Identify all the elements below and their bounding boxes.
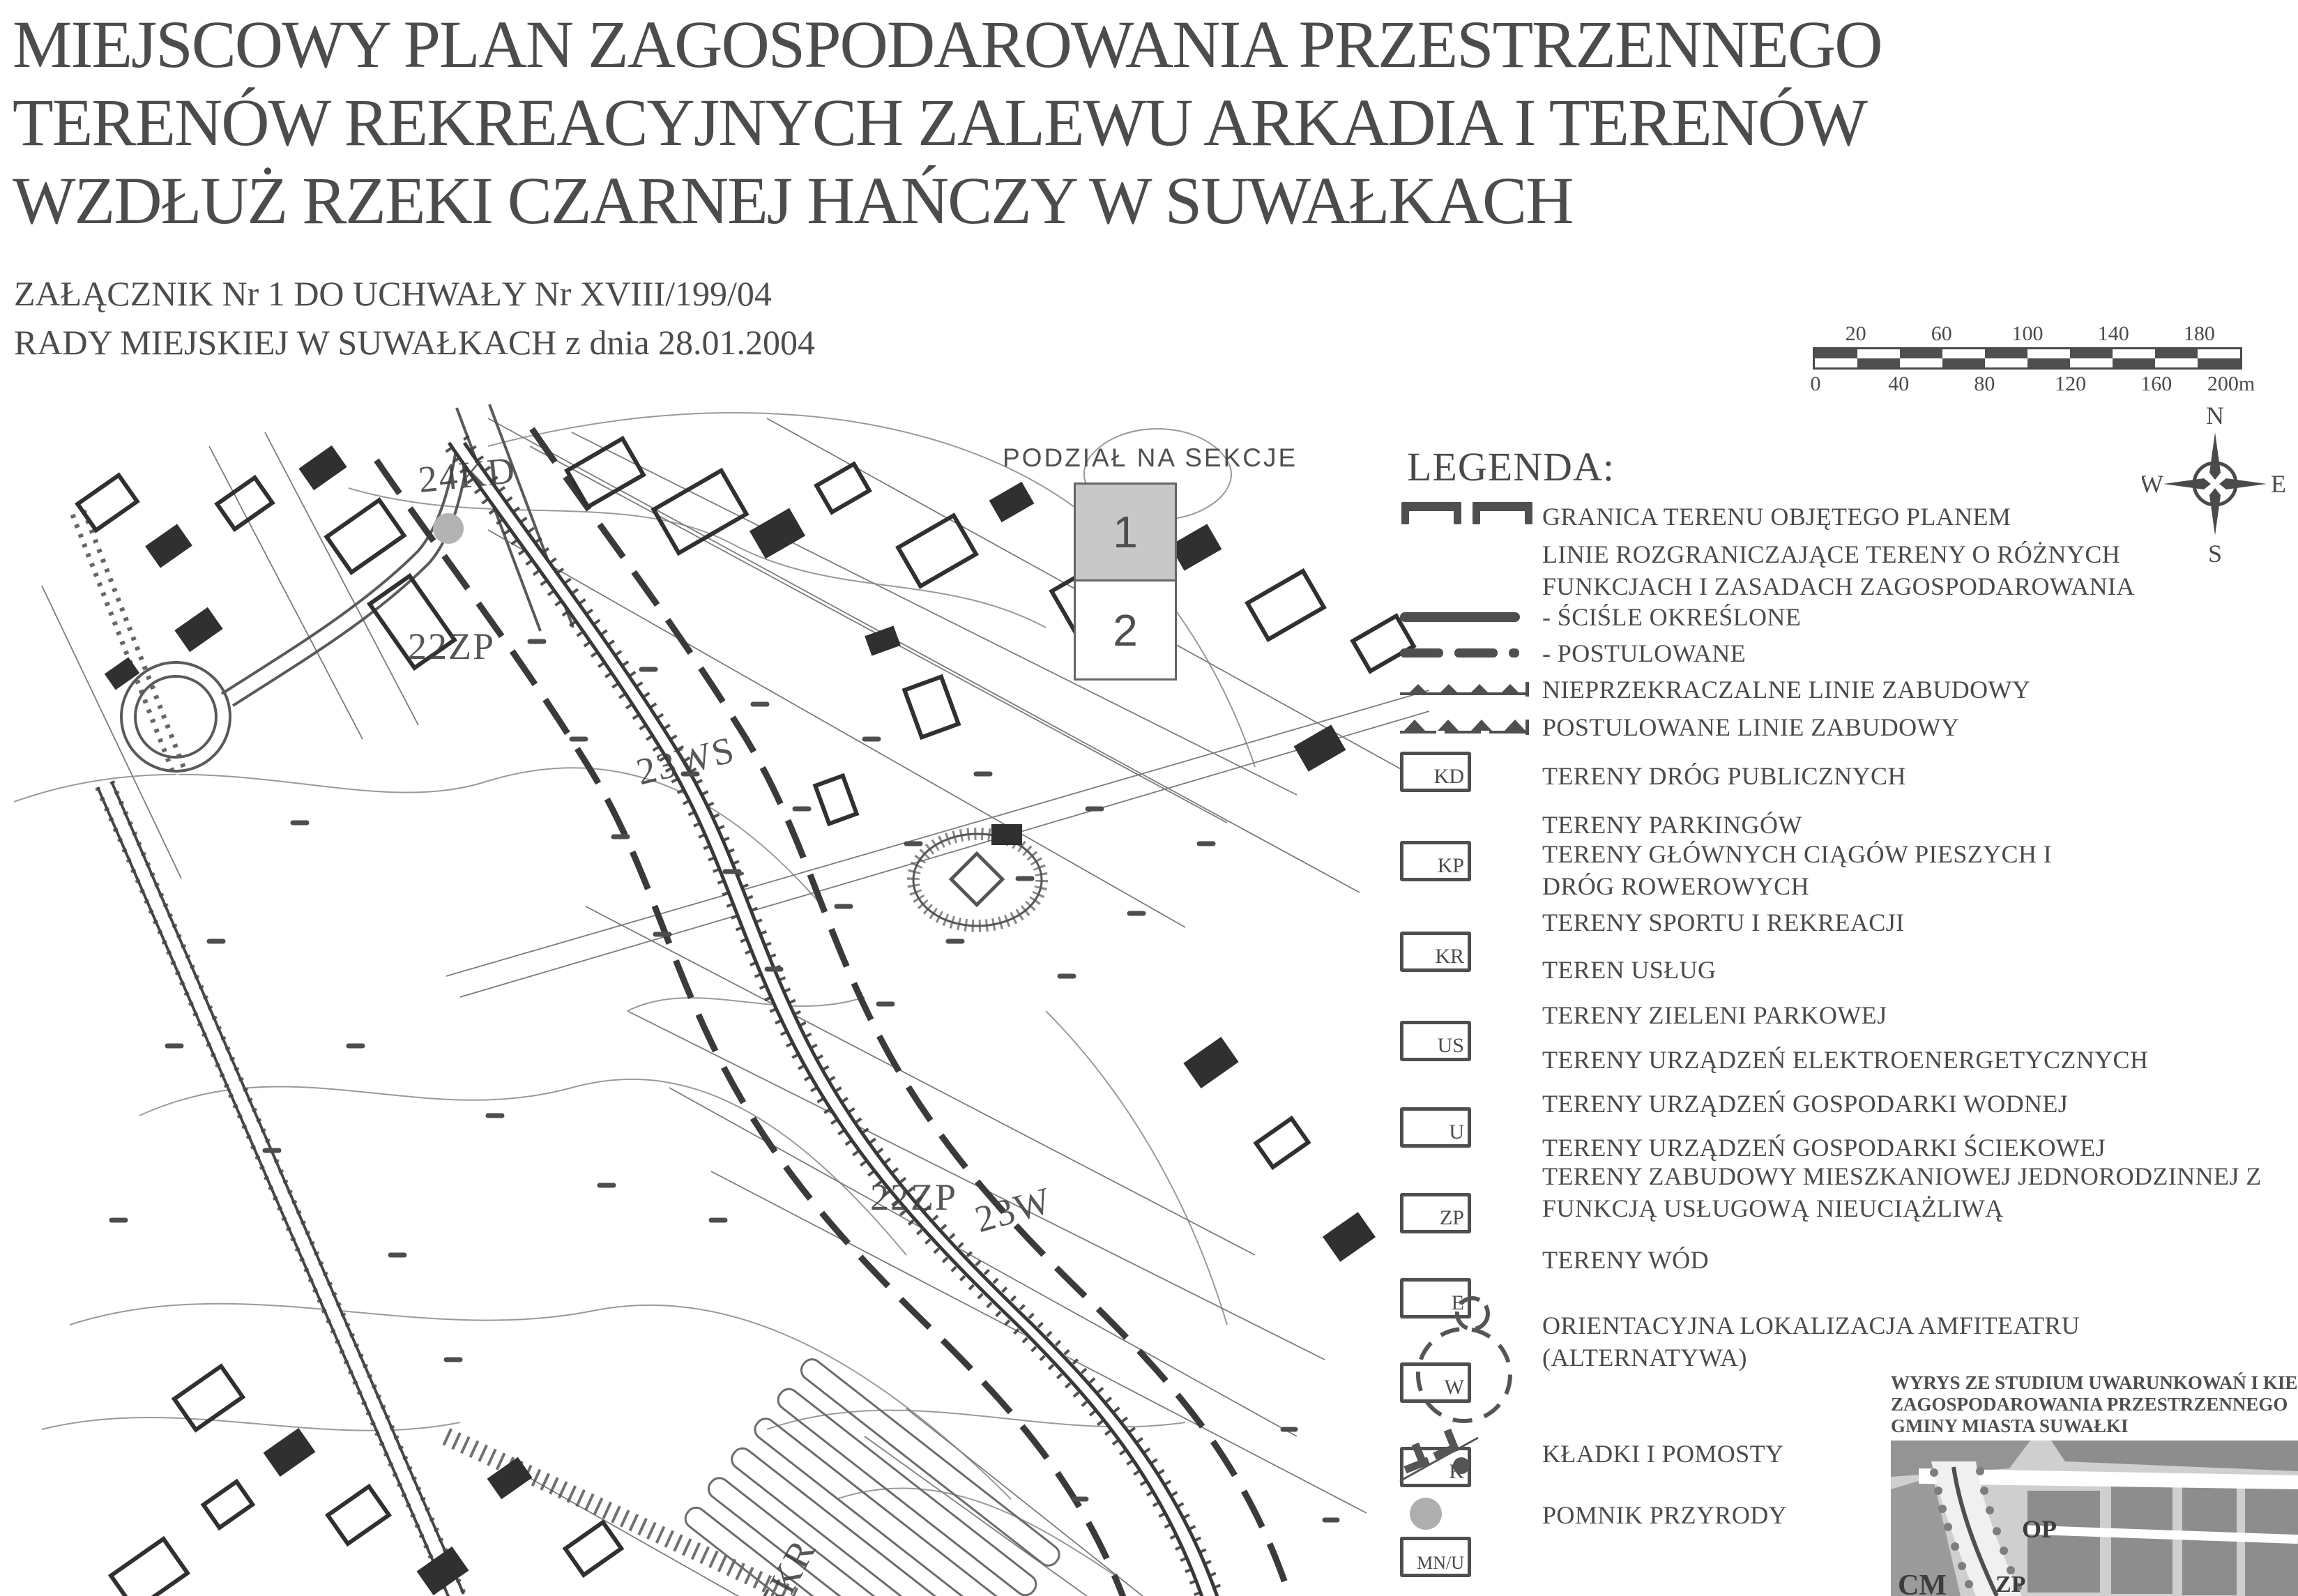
page-title-line-3: WZDŁUŻ RZEKI CZARNEJ HAŃCZY W SUWAŁKACH (13, 163, 1572, 238)
survey-ticks (112, 641, 1337, 1520)
legend-heading: LEGENDA: (1407, 443, 1615, 490)
scale-tick-label: 100 (2012, 322, 2044, 346)
inset-title-line-1: WYRYS ZE STUDIUM UWARUNKOWAŃ I KIERUNKÓW (1891, 1372, 2253, 1394)
sections-box: 1 2 (1074, 482, 1177, 681)
scale-tick-label: 180 (2184, 322, 2215, 346)
legend-symbol-building-line-2 (1400, 711, 1536, 739)
legend-code: U (1449, 1120, 1464, 1144)
scale-tick-label: 20 (1846, 322, 1866, 346)
legend-label-ws: TERENY WÓD (1542, 1244, 2225, 1276)
legend-code: US (1438, 1034, 1464, 1058)
legend-symbol-box-kp: KP (1400, 841, 1471, 881)
parking-strips (682, 1355, 1063, 1596)
legend-symbol-building-line (1400, 675, 1536, 700)
legend-label-kd: TERENY DRÓG PUBLICZNYCH (1542, 760, 2225, 792)
legend-label-u: TEREN USŁUG (1542, 954, 2225, 986)
compass-n: N (2206, 406, 2224, 430)
legend-symbol-box-us: US (1400, 1021, 1471, 1061)
scale-bar-bottom-labels: 0 40 80 120 160 200m (1813, 370, 2242, 397)
legend-label-mnu: TERENY ZABUDOWY MIESZKANIOWEJ JEDNORODZI… (1542, 1160, 2281, 1224)
legend-symbol-monument-dot (1410, 1498, 1442, 1530)
plan-sheet: MIEJSCOWY PLAN ZAGOSPODAROWANIA PRZESTRZ… (0, 0, 2298, 1596)
building-outlines (77, 439, 1413, 1596)
inset-title-line-3: GMINY MIASTA SUWAŁKI (1891, 1415, 2253, 1437)
scale-tick-label: 80 (1974, 372, 1995, 396)
legend-code: KP (1438, 854, 1464, 878)
scale-tick-label: 160 (2140, 372, 2172, 396)
page-title-line-1: MIEJSCOWY PLAN ZAGOSPODAROWANIA PRZESTRZ… (13, 7, 1882, 82)
legend-code: ZP (1440, 1206, 1464, 1230)
legend-label-linie-rozgraniczajace: LINIE ROZGRANICZAJĄCE TERENY O RÓŻNYCH F… (1542, 538, 2170, 602)
scale-tick-label: 140 (2098, 322, 2129, 346)
legend-label-postulowane-zabudowy: POSTULOWANE LINIE ZABUDOWY (1542, 711, 2225, 743)
legend-symbol-box-kd: KD (1400, 752, 1471, 792)
legend-symbol-dashed-line (1400, 648, 1519, 658)
legend-label-kp: TERENY PARKINGÓW (1542, 809, 2225, 841)
legend-label-nieprzekraczalne: NIEPRZEKRACZALNE LINIE ZABUDOWY (1542, 674, 2225, 706)
legend-code: MN/U (1417, 1553, 1464, 1574)
legend-symbol-box-u: U (1400, 1107, 1471, 1148)
legend-symbol-box-zp: ZP (1400, 1193, 1471, 1233)
inset-title-line-2: ZAGOSPODAROWANIA PRZESTRZENNEGO (1891, 1394, 2253, 1415)
inset-map (1891, 1441, 2298, 1596)
sections-title: PODZIAŁ NA SEKCJE (1003, 443, 1298, 473)
legend-symbol-box-mnu: MN/U (1400, 1537, 1471, 1577)
scale-bar-top-labels: 20 60 100 140 180 (1813, 322, 2242, 347)
scale-bar-checker (1813, 347, 2242, 370)
legend-symbol-boundary (1400, 496, 1536, 530)
legend-label-us: TERENY SPORTU I REKREACJI (1542, 906, 2225, 938)
road-band-south (446, 1436, 795, 1596)
scale-tick-label: 200m (2207, 372, 2255, 396)
scale-tick-label: 0 (1811, 372, 1821, 396)
plan-map-drawing (0, 401, 1436, 1596)
scale-tick-label: 60 (1931, 322, 1952, 346)
scale-bar: 20 60 100 140 180 0 40 80 120 160 200m (1813, 322, 2242, 397)
legend-label-w: TERENY URZĄDZEŃ GOSPODARKI WODNEJ (1542, 1088, 2267, 1120)
page-title-line-2: TERENÓW REKREACYJNYCH ZALEWU ARKADIA I T… (13, 85, 1866, 160)
legend-label-postulowane: - POSTULOWANE (1542, 637, 2170, 669)
monument-dot-on-map (433, 513, 464, 544)
legend-code: KR (1435, 945, 1464, 968)
compass-e: E (2271, 470, 2286, 498)
legend-label-zp: TERENY ZIELENI PARKOWEJ (1542, 999, 2225, 1031)
section-cell-2: 2 (1076, 582, 1175, 678)
section-cell-1: 1 (1076, 485, 1175, 582)
parcel-lines (42, 418, 1429, 1596)
legend-label-k: TERENY URZĄDZEŃ GOSPODARKI ŚCIEKOWEJ (1542, 1132, 2267, 1164)
compass-s: S (2208, 540, 2222, 566)
legend-symbol-box-kr: KR (1400, 932, 1471, 972)
legend-label-granica: GRANICA TERENU OBJĘTEGO PLANEM (1542, 501, 2225, 533)
scale-tick-label: 40 (1888, 372, 1909, 396)
legend-label-kr: TERENY GŁÓWNYCH CIĄGÓW PIESZYCH I DRÓG R… (1542, 838, 2072, 902)
legend-code: KD (1434, 765, 1464, 789)
legend-label-amphitheater: ORIENTACYJNA LOKALIZACJA AMFITEATRU (ALT… (1542, 1309, 2114, 1374)
legend-symbol-bridge (1394, 1422, 1485, 1492)
legend-label-scisle-okreslone: - ŚCIŚLE OKREŚLONE (1542, 601, 2170, 633)
compass-w: W (2142, 470, 2163, 498)
legend-symbol-amphitheater (1403, 1291, 1528, 1431)
attachment-line-2: RADY MIEJSKIEJ W SUWAŁKACH z dnia 28.01.… (14, 322, 815, 363)
legend-label-e: TERENY URZĄDZEŃ ELEKTROENERGETYCZNYCH (1542, 1044, 2267, 1076)
attachment-line-1: ZAŁĄCZNIK Nr 1 DO UCHWAŁY Nr XVIII/199/0… (14, 273, 772, 314)
scale-tick-label: 120 (2055, 372, 2086, 396)
legend-symbol-solid-line (1400, 612, 1520, 622)
